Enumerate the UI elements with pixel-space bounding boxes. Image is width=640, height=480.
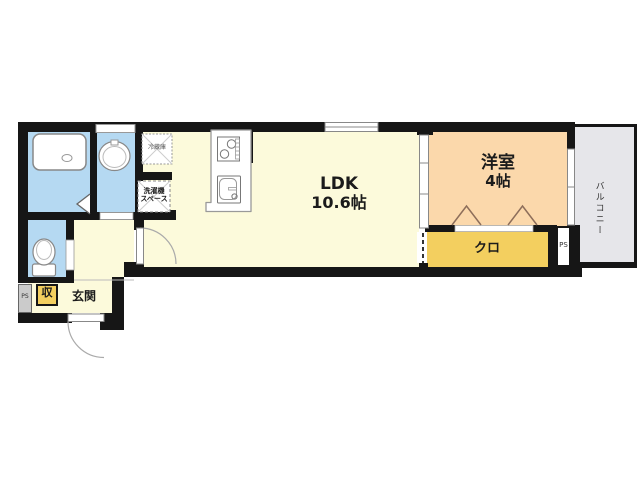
folding-door-triangles bbox=[452, 206, 537, 225]
closet-opening bbox=[455, 226, 533, 232]
laundry-label-line1: 洗濯機 bbox=[136, 187, 172, 195]
toilet-door-opening bbox=[66, 240, 74, 270]
entrance-label: 玄関 bbox=[59, 289, 109, 303]
storage-label: 収 bbox=[36, 287, 58, 300]
toilet bbox=[33, 239, 56, 276]
window-western-room bbox=[568, 149, 575, 225]
western-room-name: 洋室 bbox=[453, 153, 543, 173]
laundry-label: 洗濯機 スペース bbox=[136, 187, 172, 204]
ldk-label: LDK 10.6帖 bbox=[294, 174, 384, 213]
window-washroom bbox=[96, 125, 135, 133]
bathtub bbox=[33, 134, 86, 170]
window-ldk bbox=[325, 123, 378, 132]
bathroom-door-icon bbox=[77, 194, 90, 214]
ldk-size: 10.6帖 bbox=[294, 194, 384, 213]
ldk-name: LDK bbox=[294, 174, 384, 194]
ps-left-label: PS bbox=[18, 293, 32, 300]
washroom-door-opening bbox=[100, 213, 133, 220]
balcony-label: バルコニー bbox=[593, 172, 604, 244]
closet-label: クロ bbox=[442, 241, 532, 256]
fixtures-layer bbox=[0, 0, 640, 480]
washbasin bbox=[99, 140, 130, 171]
western-room-size: 4帖 bbox=[453, 173, 543, 191]
sliding-door-track bbox=[420, 135, 429, 228]
ps-right-label: PS bbox=[556, 241, 571, 249]
refrigerator-label: 冷蔵庫 bbox=[142, 144, 172, 151]
hall-door bbox=[137, 228, 177, 264]
kitchen-unit bbox=[206, 130, 251, 212]
floor-plan: LDK 10.6帖 洋室 4帖 クロ 玄関 収 バルコニー 冷蔵庫 洗濯機 スペ… bbox=[0, 0, 640, 480]
western-room-label: 洋室 4帖 bbox=[453, 153, 543, 191]
entrance-door bbox=[68, 314, 104, 358]
laundry-label-line2: スペース bbox=[136, 195, 172, 203]
